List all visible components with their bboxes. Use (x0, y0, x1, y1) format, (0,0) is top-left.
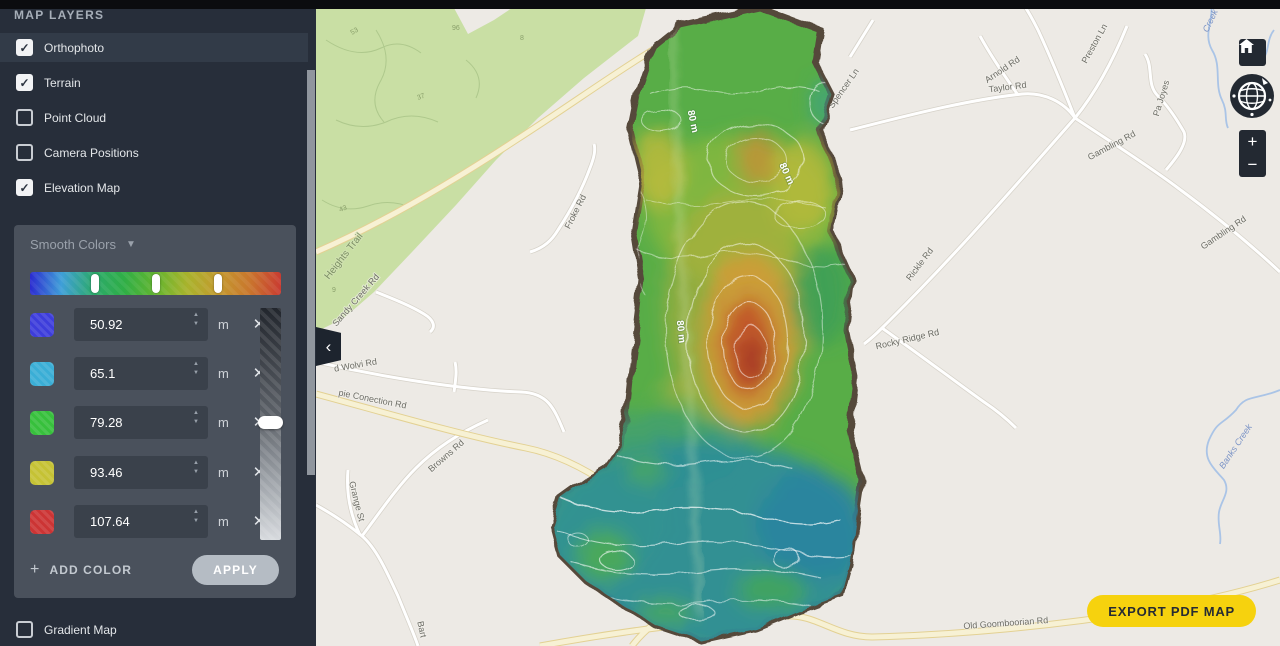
step-up-icon[interactable]: ▲ (193, 410, 199, 416)
add-color-button[interactable]: + ADD COLOR (30, 561, 132, 579)
basemap: 53 96 8 37 43 9 (316, 0, 1280, 646)
layer-row-point-cloud[interactable]: ✓ Point Cloud (0, 103, 308, 132)
layer-label: Camera Positions (44, 146, 139, 160)
step-down-icon[interactable]: ▼ (193, 370, 199, 376)
step-down-icon[interactable]: ▼ (193, 469, 199, 475)
color-stop-row: ▲▼ m ✕ (30, 456, 280, 490)
layer-row-elevation-map[interactable]: ✓ Elevation Map (0, 173, 308, 202)
orthophoto-checkbox[interactable]: ✓ (16, 39, 33, 56)
svg-text:Gambling Rd: Gambling Rd (1086, 129, 1137, 162)
sidebar-title: MAP LAYERS (14, 8, 104, 22)
layer-label: Terrain (44, 76, 81, 90)
home-button[interactable] (1239, 39, 1266, 66)
svg-text:Froke Rd: Froke Rd (562, 193, 588, 231)
step-up-icon[interactable]: ▲ (193, 361, 199, 367)
color-gradient-bar[interactable] (30, 272, 281, 295)
color-mode-dropdown[interactable]: Smooth Colors ▼ (30, 237, 136, 252)
chevron-down-icon: ▼ (126, 239, 136, 250)
color-swatch[interactable] (30, 411, 54, 435)
zoom-out-button[interactable]: − (1239, 153, 1266, 176)
unit-label: m (218, 317, 229, 332)
unit-label: m (218, 514, 229, 529)
layer-label: Orthophoto (44, 41, 104, 55)
unit-label: m (218, 366, 229, 381)
svg-text:96: 96 (452, 25, 460, 32)
step-down-icon[interactable]: ▼ (193, 419, 199, 425)
layer-row-orthophoto[interactable]: ✓ Orthophoto (0, 33, 308, 62)
color-swatch[interactable] (30, 362, 54, 386)
svg-text:Creek: Creek (1201, 7, 1220, 33)
chevron-left-icon: ‹ (326, 337, 332, 357)
svg-text:Gambling Rd: Gambling Rd (1199, 214, 1248, 252)
zoom-in-button[interactable]: + (1239, 130, 1266, 153)
value-stepper[interactable]: ▲▼ (193, 509, 199, 524)
step-down-icon[interactable]: ▼ (193, 518, 199, 524)
color-swatch[interactable] (30, 461, 54, 485)
layer-row-camera-positions[interactable]: ✓ Camera Positions (0, 138, 308, 167)
svg-text:8: 8 (520, 35, 524, 42)
color-swatch[interactable] (30, 313, 54, 337)
elevation-overlay (536, 8, 871, 646)
value-stepper[interactable]: ▲▼ (193, 361, 199, 376)
unit-label: m (218, 465, 229, 480)
step-down-icon[interactable]: ▼ (193, 321, 199, 327)
elevation-value-field: ▲▼ (74, 406, 208, 439)
color-stop-row: ▲▼ m ✕ (30, 406, 280, 440)
color-mode-label: Smooth Colors (30, 237, 116, 252)
step-up-icon[interactable]: ▲ (193, 460, 199, 466)
elevation-map-checkbox[interactable]: ✓ (16, 179, 33, 196)
map-viewport[interactable]: 53 96 8 37 43 9 (316, 0, 1280, 646)
step-up-icon[interactable]: ▲ (193, 509, 199, 515)
color-swatch[interactable] (30, 510, 54, 534)
layer-label: Point Cloud (44, 111, 106, 125)
layer-row-gradient-map[interactable]: ✓ Gradient Map (0, 615, 308, 644)
top-black-bar (0, 0, 1280, 9)
sidebar-collapse-tab[interactable]: ‹ (316, 327, 341, 366)
svg-text:Banks Creek: Banks Creek (1217, 422, 1254, 471)
elevation-value-input[interactable] (74, 456, 208, 489)
map-layers-sidebar: MAP LAYERS ✓ Orthophoto ✓ Terrain ✓ Poin… (0, 0, 316, 646)
gradient-handle[interactable] (152, 274, 160, 293)
unit-label: m (218, 415, 229, 430)
export-pdf-button[interactable]: EXPORT PDF MAP (1087, 595, 1256, 627)
elevation-value-field: ▲▼ (74, 456, 208, 489)
gradient-map-checkbox[interactable]: ✓ (16, 621, 33, 638)
point-cloud-checkbox[interactable]: ✓ (16, 109, 33, 126)
home-icon (1239, 39, 1254, 53)
elevation-value-field: ▲▼ (74, 505, 208, 538)
color-stop-row: ▲▼ m ✕ (30, 357, 280, 391)
color-stop-row: ▲▼ m ✕ (30, 308, 280, 342)
globe-compass-icon (1230, 74, 1274, 118)
opacity-slider[interactable] (260, 308, 281, 540)
elevation-value-field: ▲▼ (74, 308, 208, 341)
elevation-value-input[interactable] (74, 505, 208, 538)
layer-label: Elevation Map (44, 181, 120, 195)
elevation-value-input[interactable] (74, 308, 208, 341)
value-stepper[interactable]: ▲▼ (193, 410, 199, 425)
plus-icon: + (30, 561, 40, 579)
svg-text:9: 9 (332, 287, 336, 294)
value-stepper[interactable]: ▲▼ (193, 312, 199, 327)
gradient-handle[interactable] (91, 274, 99, 293)
svg-text:Preston Ln: Preston Ln (1079, 22, 1109, 65)
elevation-color-panel: Smooth Colors ▼ ▲▼ m ✕ ▲▼ m ✕ (14, 225, 296, 598)
elevation-value-field: ▲▼ (74, 357, 208, 390)
terrain-checkbox[interactable]: ✓ (16, 74, 33, 91)
sidebar-scrollbar[interactable] (307, 70, 315, 475)
layer-label: Gradient Map (44, 623, 117, 637)
color-stop-row: ▲▼ m ✕ (30, 505, 280, 539)
gradient-handle[interactable] (214, 274, 222, 293)
apply-button[interactable]: APPLY (192, 555, 279, 585)
svg-text:Bart: Bart (415, 620, 428, 639)
add-color-label: ADD COLOR (49, 563, 132, 577)
opacity-slider-handle[interactable] (258, 416, 283, 429)
zoom-control: + − (1239, 130, 1266, 177)
elevation-value-input[interactable] (74, 406, 208, 439)
step-up-icon[interactable]: ▲ (193, 312, 199, 318)
elevation-value-input[interactable] (74, 357, 208, 390)
camera-positions-checkbox[interactable]: ✓ (16, 144, 33, 161)
layer-row-terrain[interactable]: ✓ Terrain (0, 68, 308, 97)
compass-button[interactable] (1230, 74, 1274, 118)
value-stepper[interactable]: ▲▼ (193, 460, 199, 475)
